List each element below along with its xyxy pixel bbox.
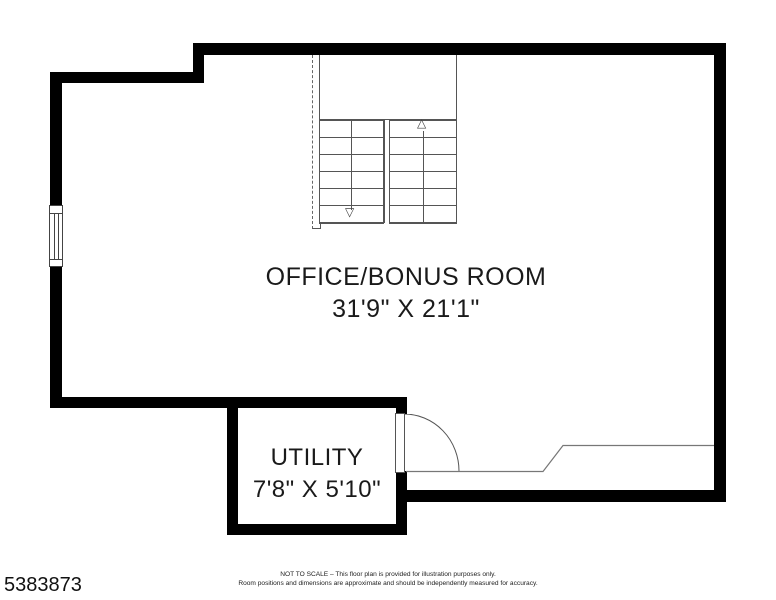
- disclaimer-line-1: NOT TO SCALE – This floor plan is provid…: [88, 571, 688, 580]
- stair-landing: [319, 55, 457, 120]
- stair-rail-left: [351, 120, 352, 210]
- disclaimer: NOT TO SCALE – This floor plan is provid…: [88, 571, 688, 588]
- utility-room-label: UTILITY: [238, 444, 396, 472]
- wall-left-upper: [50, 72, 62, 205]
- window-icon: [49, 205, 63, 267]
- stairs-down-arrow-icon: ▽: [345, 206, 354, 218]
- stair-rail-right: [423, 131, 424, 223]
- wall-left-lower: [50, 266, 62, 408]
- wall-top-upper: [193, 43, 726, 55]
- utility-room-dimensions: 7'8" X 5'10": [228, 476, 406, 504]
- window-pane: [54, 214, 59, 259]
- stairs-up-arrow-icon: △: [417, 117, 426, 129]
- floor-plan: ▽ △ OFFICE/BONUS ROOM 31'9" X 21'1" UTIL…: [0, 0, 776, 600]
- wall-utility-bottom: [227, 524, 407, 535]
- wall-bottom-right: [396, 490, 726, 502]
- wall-utility-left: [227, 397, 238, 535]
- wall-top-left: [50, 72, 204, 83]
- disclaimer-line-2: Room positions and dimensions are approx…: [88, 580, 688, 589]
- listing-id: 5383873: [4, 574, 82, 597]
- wall-right: [714, 43, 726, 502]
- step-lines: [406, 444, 715, 473]
- window-sill-bottom: [50, 259, 62, 260]
- office-room-dimensions: 31'9" X 21'1": [206, 295, 606, 324]
- office-room-label: OFFICE/BONUS ROOM: [206, 263, 606, 292]
